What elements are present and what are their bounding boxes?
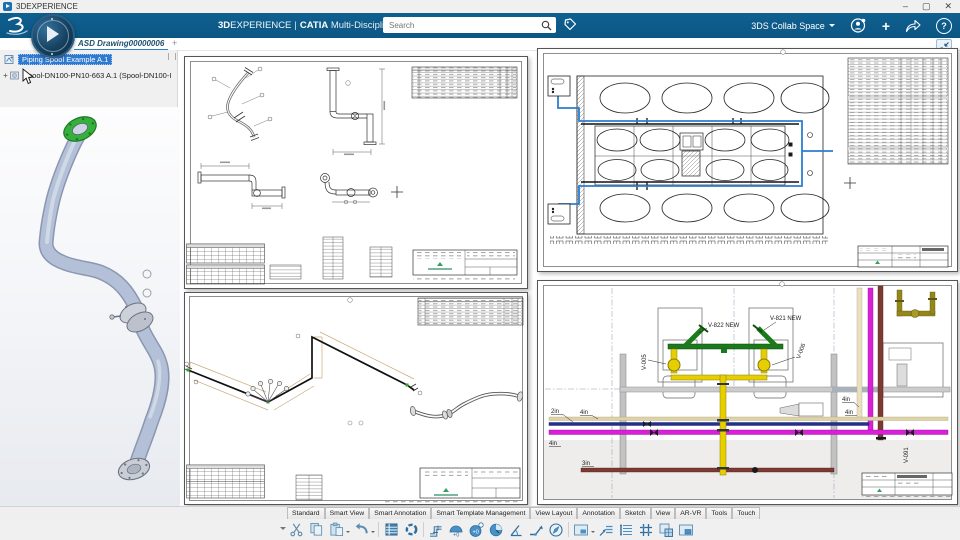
view-frame-icon[interactable] (571, 521, 591, 539)
brand-3d: 3D (218, 20, 230, 31)
piping-spool-3d-model[interactable] (0, 107, 180, 506)
tab-sketch[interactable]: Sketch (620, 507, 651, 519)
user-avatar-icon[interactable] (850, 17, 867, 34)
bom-table (412, 67, 517, 98)
new-sheet-icon[interactable] (656, 521, 676, 539)
paste-dropdown-caret-icon[interactable] (346, 531, 350, 535)
search-icon[interactable] (541, 20, 552, 31)
undo-icon[interactable] (351, 521, 371, 539)
cut-icon[interactable] (286, 521, 306, 539)
collab-space-selector[interactable]: 3DS Collab Space (751, 21, 835, 31)
pie-view-icon[interactable] (486, 521, 506, 539)
title-block (858, 246, 948, 267)
compass-play-icon (47, 26, 59, 42)
tab-annotation[interactable]: Annotation (577, 507, 620, 519)
undo-dropdown-caret-icon[interactable] (371, 531, 375, 535)
tab-view[interactable]: View (651, 507, 676, 519)
svg-text:+0: +0 (453, 532, 459, 538)
action-toolbar: +0 +0 (0, 519, 960, 540)
tag-icon[interactable] (562, 17, 578, 33)
help-glyph: ? (941, 21, 947, 31)
compass-south-dot (51, 53, 53, 55)
tree-scroll-hint[interactable] (168, 53, 176, 60)
label-4in-right-bottom: 4in (845, 410, 853, 416)
magenta-pipe (549, 430, 948, 435)
tab-smart-template-management[interactable]: Smart Template Management (431, 507, 530, 519)
brown-pipe (581, 468, 834, 472)
leader-note-icon[interactable] (596, 521, 616, 539)
view-dropdown-caret-icon[interactable] (591, 531, 595, 535)
part-node-icon (9, 70, 20, 81)
search-box[interactable] (383, 17, 556, 33)
label-4in-left: 4in (580, 410, 588, 416)
3d-viewport[interactable] (0, 107, 180, 506)
label-v822: V-822 NEW (708, 323, 740, 329)
label-v091: V-091 (904, 447, 910, 463)
collab-space-label: 3DS Collab Space (751, 21, 825, 31)
sheet-general-arrangement-drawing[interactable] (537, 48, 958, 272)
add-content-button[interactable]: + (882, 19, 890, 33)
3ds-logo-icon[interactable] (5, 16, 29, 35)
3dexperience-compass[interactable] (31, 14, 75, 58)
sheet-piping-elevation-drawing[interactable]: V-822 NEW V-821 NEW V-005 V-006 2in 4in … (537, 280, 958, 505)
svg-text:+0: +0 (473, 529, 479, 535)
green-flange (60, 112, 100, 146)
grid-icon[interactable] (636, 521, 656, 539)
brand-catia: CATIA (300, 20, 328, 31)
search-input[interactable] (383, 21, 541, 30)
compass-tool-icon[interactable] (546, 521, 566, 539)
brand-divider: | (291, 20, 299, 31)
angle-dimension-icon[interactable] (506, 521, 526, 539)
tab-standard[interactable]: Standard (287, 507, 325, 519)
label-v821: V-821 NEW (770, 316, 802, 322)
chevron-down-icon (829, 24, 835, 30)
bend-dimension-icon[interactable] (526, 521, 546, 539)
copy-icon[interactable] (306, 521, 326, 539)
tab-view-layout[interactable]: View Layout (530, 507, 577, 519)
tab-smart-annotation[interactable]: Smart Annotation (369, 507, 431, 519)
maximize-button[interactable]: ▢ (922, 0, 931, 13)
toolbar-tab-bar: Standard Smart View Smart Annotation Sma… (0, 506, 960, 519)
drawing-node-icon (4, 54, 15, 65)
scale-ruler (550, 236, 828, 244)
tab-tools[interactable]: Tools (706, 507, 732, 519)
mouse-cursor (22, 68, 35, 85)
navy-pipe (549, 423, 869, 426)
weld-node-icon[interactable]: +0 (466, 521, 486, 539)
compass-north-dot (51, 18, 53, 20)
text-lines-icon[interactable] (616, 521, 636, 539)
label-v005: V-005 (642, 354, 648, 370)
steel-beam (620, 387, 950, 392)
notification-dot (862, 19, 866, 23)
window-titlebar: 3DEXPERIENCE – ▢ ✕ (0, 0, 960, 14)
help-button[interactable]: ? (936, 18, 952, 34)
pipe-fitting-icon[interactable] (426, 521, 446, 539)
app-icon (3, 2, 12, 11)
tab-ar-vr[interactable]: AR-VR (675, 507, 706, 519)
minimize-button[interactable]: – (903, 0, 908, 13)
sheet-table-icon[interactable] (381, 521, 401, 539)
share-icon[interactable] (905, 19, 921, 33)
weld-add-icon[interactable]: +0 (446, 521, 466, 539)
new-tab-button[interactable]: + (172, 38, 177, 49)
brand-experience: EXPERIENCE (230, 20, 291, 31)
tab-touch[interactable]: Touch (732, 507, 760, 519)
tree-item-label[interactable]: Piping Spool Example A.1 (18, 54, 112, 65)
title-block (862, 473, 952, 499)
tree-item-label[interactable]: Spool-DN100-PN10-663 A.1 (Spool-DN100-I (23, 71, 171, 80)
bom-table (418, 298, 523, 325)
tab-smart-view[interactable]: Smart View (325, 507, 370, 519)
embed-sheet-icon[interactable] (676, 521, 696, 539)
paste-icon[interactable] (326, 521, 346, 539)
label-2in: 2in (551, 409, 559, 415)
update-icon[interactable] (401, 521, 421, 539)
close-button[interactable]: ✕ (944, 0, 952, 13)
label-3in: 3in (582, 461, 590, 467)
label-4in-low-left: 4in (549, 441, 557, 447)
sheet-spool-isometric-drawing[interactable] (184, 292, 528, 505)
window-title: 3DEXPERIENCE (16, 2, 78, 11)
tree-expander[interactable]: + (2, 71, 9, 80)
label-4in-right-top: 4in (842, 397, 850, 403)
sheet-spool-detail-drawing[interactable] (184, 56, 528, 289)
tan-pipe (549, 417, 948, 421)
line-list-table (848, 58, 948, 164)
bottom-flange (116, 455, 153, 484)
